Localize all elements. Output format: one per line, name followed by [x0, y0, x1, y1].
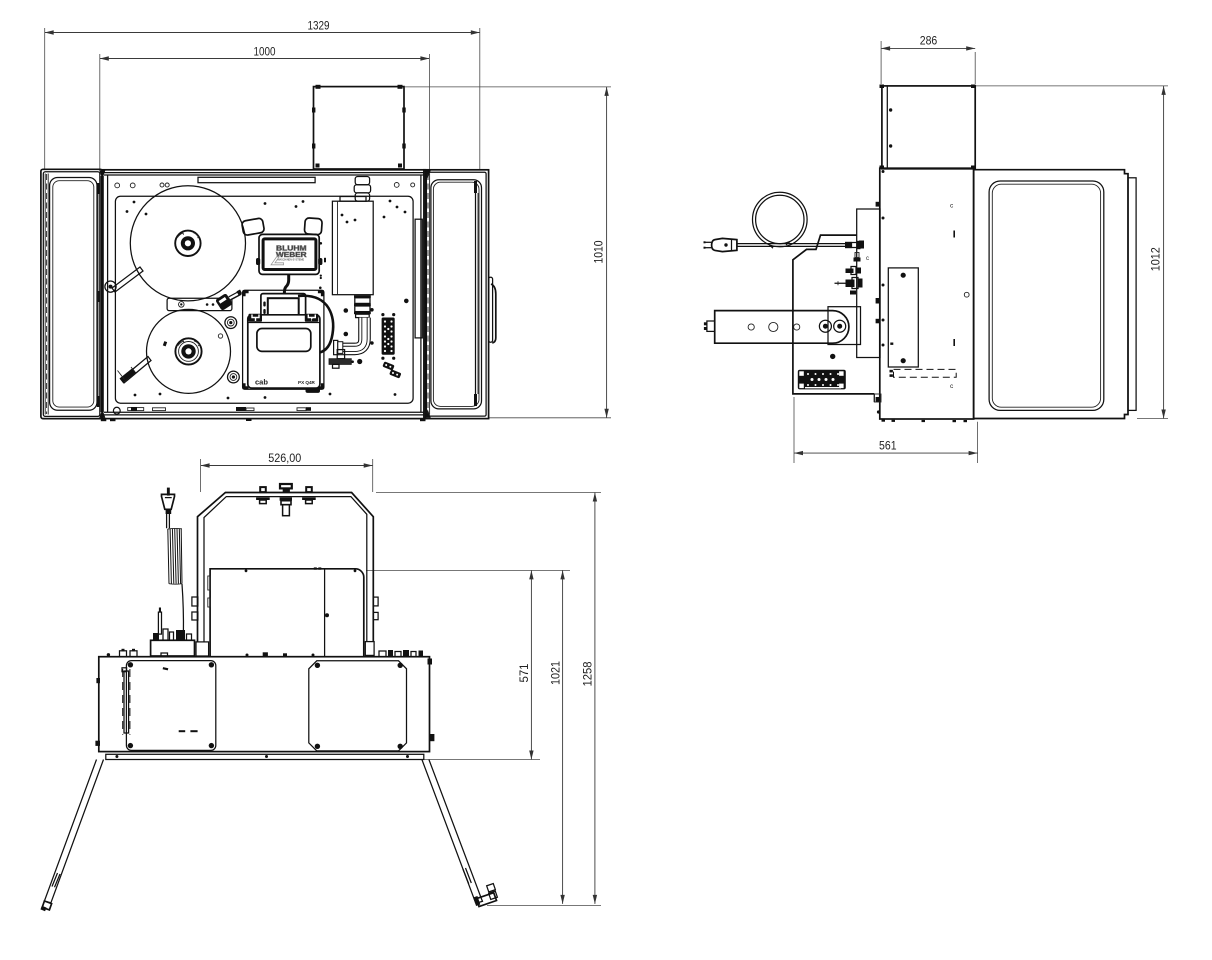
- svg-text:561: 561: [879, 438, 897, 452]
- svg-text:1258: 1258: [581, 661, 595, 686]
- svg-text:1329: 1329: [308, 19, 330, 33]
- svg-text:PX Q4R: PX Q4R: [298, 380, 316, 385]
- svg-text:1012: 1012: [1149, 247, 1163, 271]
- svg-text:571: 571: [517, 663, 531, 682]
- svg-text:286: 286: [920, 34, 938, 48]
- svg-text:526,00: 526,00: [268, 451, 301, 465]
- svg-text:1021: 1021: [548, 661, 562, 685]
- svg-text:c: c: [866, 256, 869, 262]
- svg-text:MASCHINEN-SYSTEME: MASCHINEN-SYSTEME: [278, 257, 305, 261]
- svg-text:cab: cab: [255, 378, 268, 387]
- svg-text:1010: 1010: [592, 240, 606, 263]
- svg-text:1000: 1000: [254, 45, 276, 59]
